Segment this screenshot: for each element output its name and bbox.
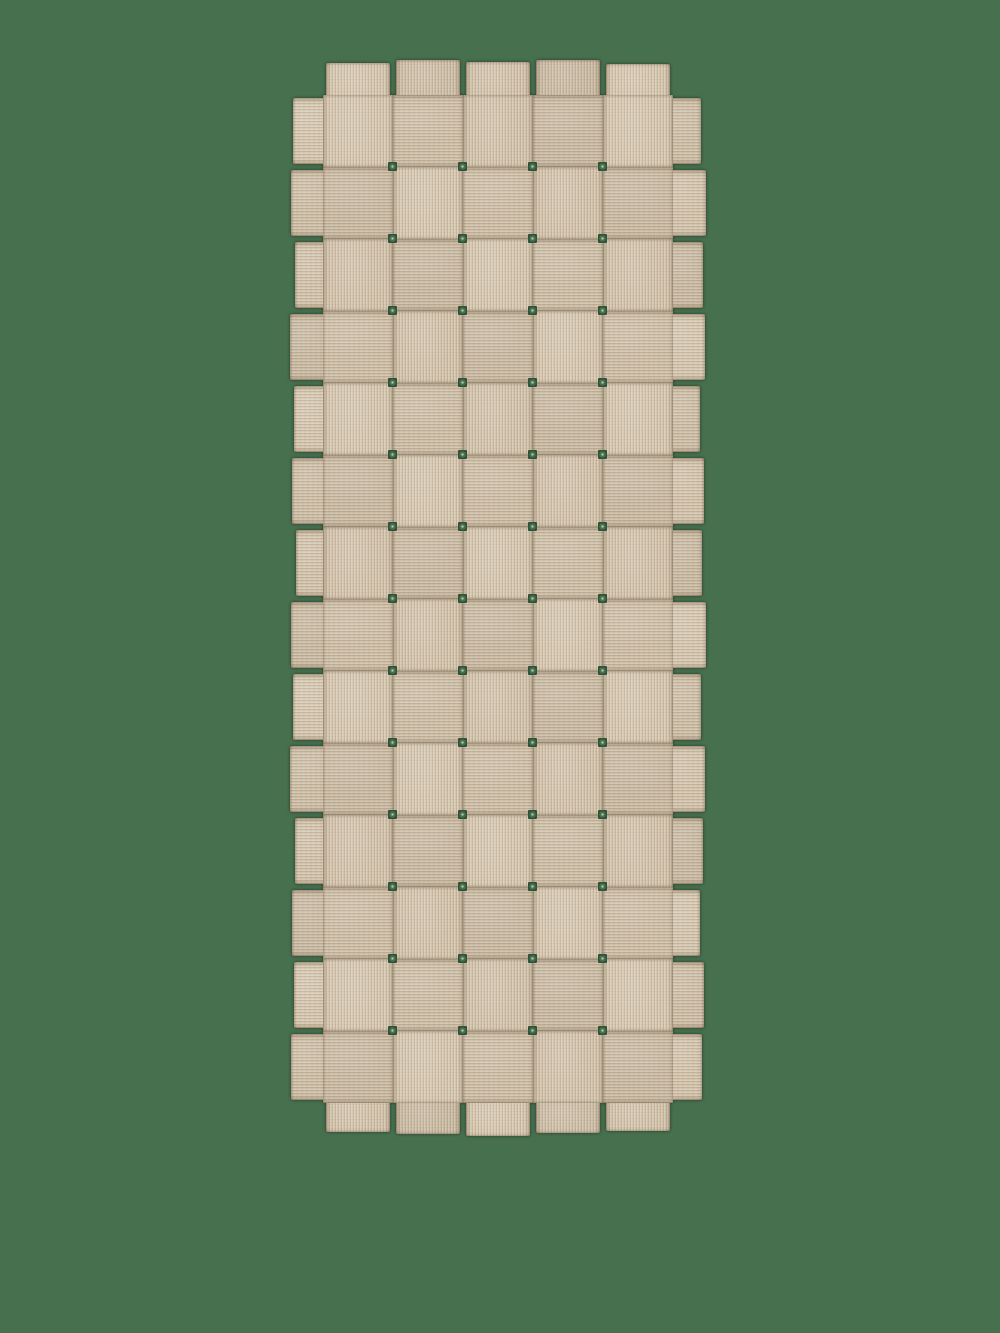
weave-cell: [533, 239, 603, 311]
weave-cell: [323, 527, 393, 599]
weave-cell: [603, 671, 673, 743]
weave-cell: [393, 455, 463, 527]
weave-cell: [603, 383, 673, 455]
weave-cell: [603, 95, 673, 167]
weave-cell: [603, 239, 673, 311]
weave-cell: [533, 815, 603, 887]
weave-cell: [323, 95, 393, 167]
weave-cell: [393, 383, 463, 455]
weave-cell: [533, 311, 603, 383]
weave-cell: [463, 1031, 533, 1103]
weave-cell: [603, 815, 673, 887]
weave-cell: [393, 743, 463, 815]
weave-cell: [603, 311, 673, 383]
weave-cell: [323, 455, 393, 527]
weave-cell: [463, 743, 533, 815]
weave-cell: [603, 959, 673, 1031]
product-photo-scene: [0, 0, 1000, 1333]
weave-cell: [463, 815, 533, 887]
weave-cell: [323, 815, 393, 887]
weave-cell: [323, 239, 393, 311]
weave-cell: [463, 887, 533, 959]
weave-cell: [393, 887, 463, 959]
weave-cell: [323, 1031, 393, 1103]
weave-cell: [533, 671, 603, 743]
weave-cell: [533, 95, 603, 167]
weave-cell: [323, 383, 393, 455]
weave-cell: [463, 167, 533, 239]
weave-cell: [393, 239, 463, 311]
weave-cell: [323, 743, 393, 815]
weave-cell: [323, 959, 393, 1031]
weave-cell: [463, 455, 533, 527]
weave-cell: [463, 671, 533, 743]
rug-weave-grid: [323, 95, 673, 1103]
weave-cell: [323, 671, 393, 743]
weave-cell: [393, 599, 463, 671]
weave-cell: [323, 167, 393, 239]
weave-cell: [463, 239, 533, 311]
weave-cell: [533, 383, 603, 455]
weave-cell: [603, 167, 673, 239]
weave-cell: [393, 527, 463, 599]
weave-cell: [393, 1031, 463, 1103]
weave-cell: [603, 1031, 673, 1103]
weave-cell: [463, 311, 533, 383]
weave-cell: [533, 743, 603, 815]
weave-cell: [533, 167, 603, 239]
weave-cell: [603, 527, 673, 599]
weave-cell: [463, 959, 533, 1031]
weave-cell: [533, 887, 603, 959]
weave-cell: [393, 815, 463, 887]
weave-cell: [603, 887, 673, 959]
weave-cell: [603, 743, 673, 815]
weave-cell: [393, 671, 463, 743]
weave-cell: [463, 383, 533, 455]
weave-cell: [463, 95, 533, 167]
weave-cell: [463, 527, 533, 599]
woven-rug: [293, 60, 710, 1135]
weave-cell: [533, 455, 603, 527]
weave-cell: [533, 527, 603, 599]
weave-cell: [603, 455, 673, 527]
weave-cell: [603, 599, 673, 671]
weave-cell: [393, 311, 463, 383]
weave-cell: [533, 959, 603, 1031]
weave-cell: [323, 599, 393, 671]
weave-cell: [323, 887, 393, 959]
weave-cell: [463, 599, 533, 671]
weave-cell: [393, 959, 463, 1031]
weave-cell: [393, 167, 463, 239]
weave-cell: [533, 1031, 603, 1103]
weave-cell: [393, 95, 463, 167]
weave-cell: [323, 311, 393, 383]
weave-cell: [533, 599, 603, 671]
